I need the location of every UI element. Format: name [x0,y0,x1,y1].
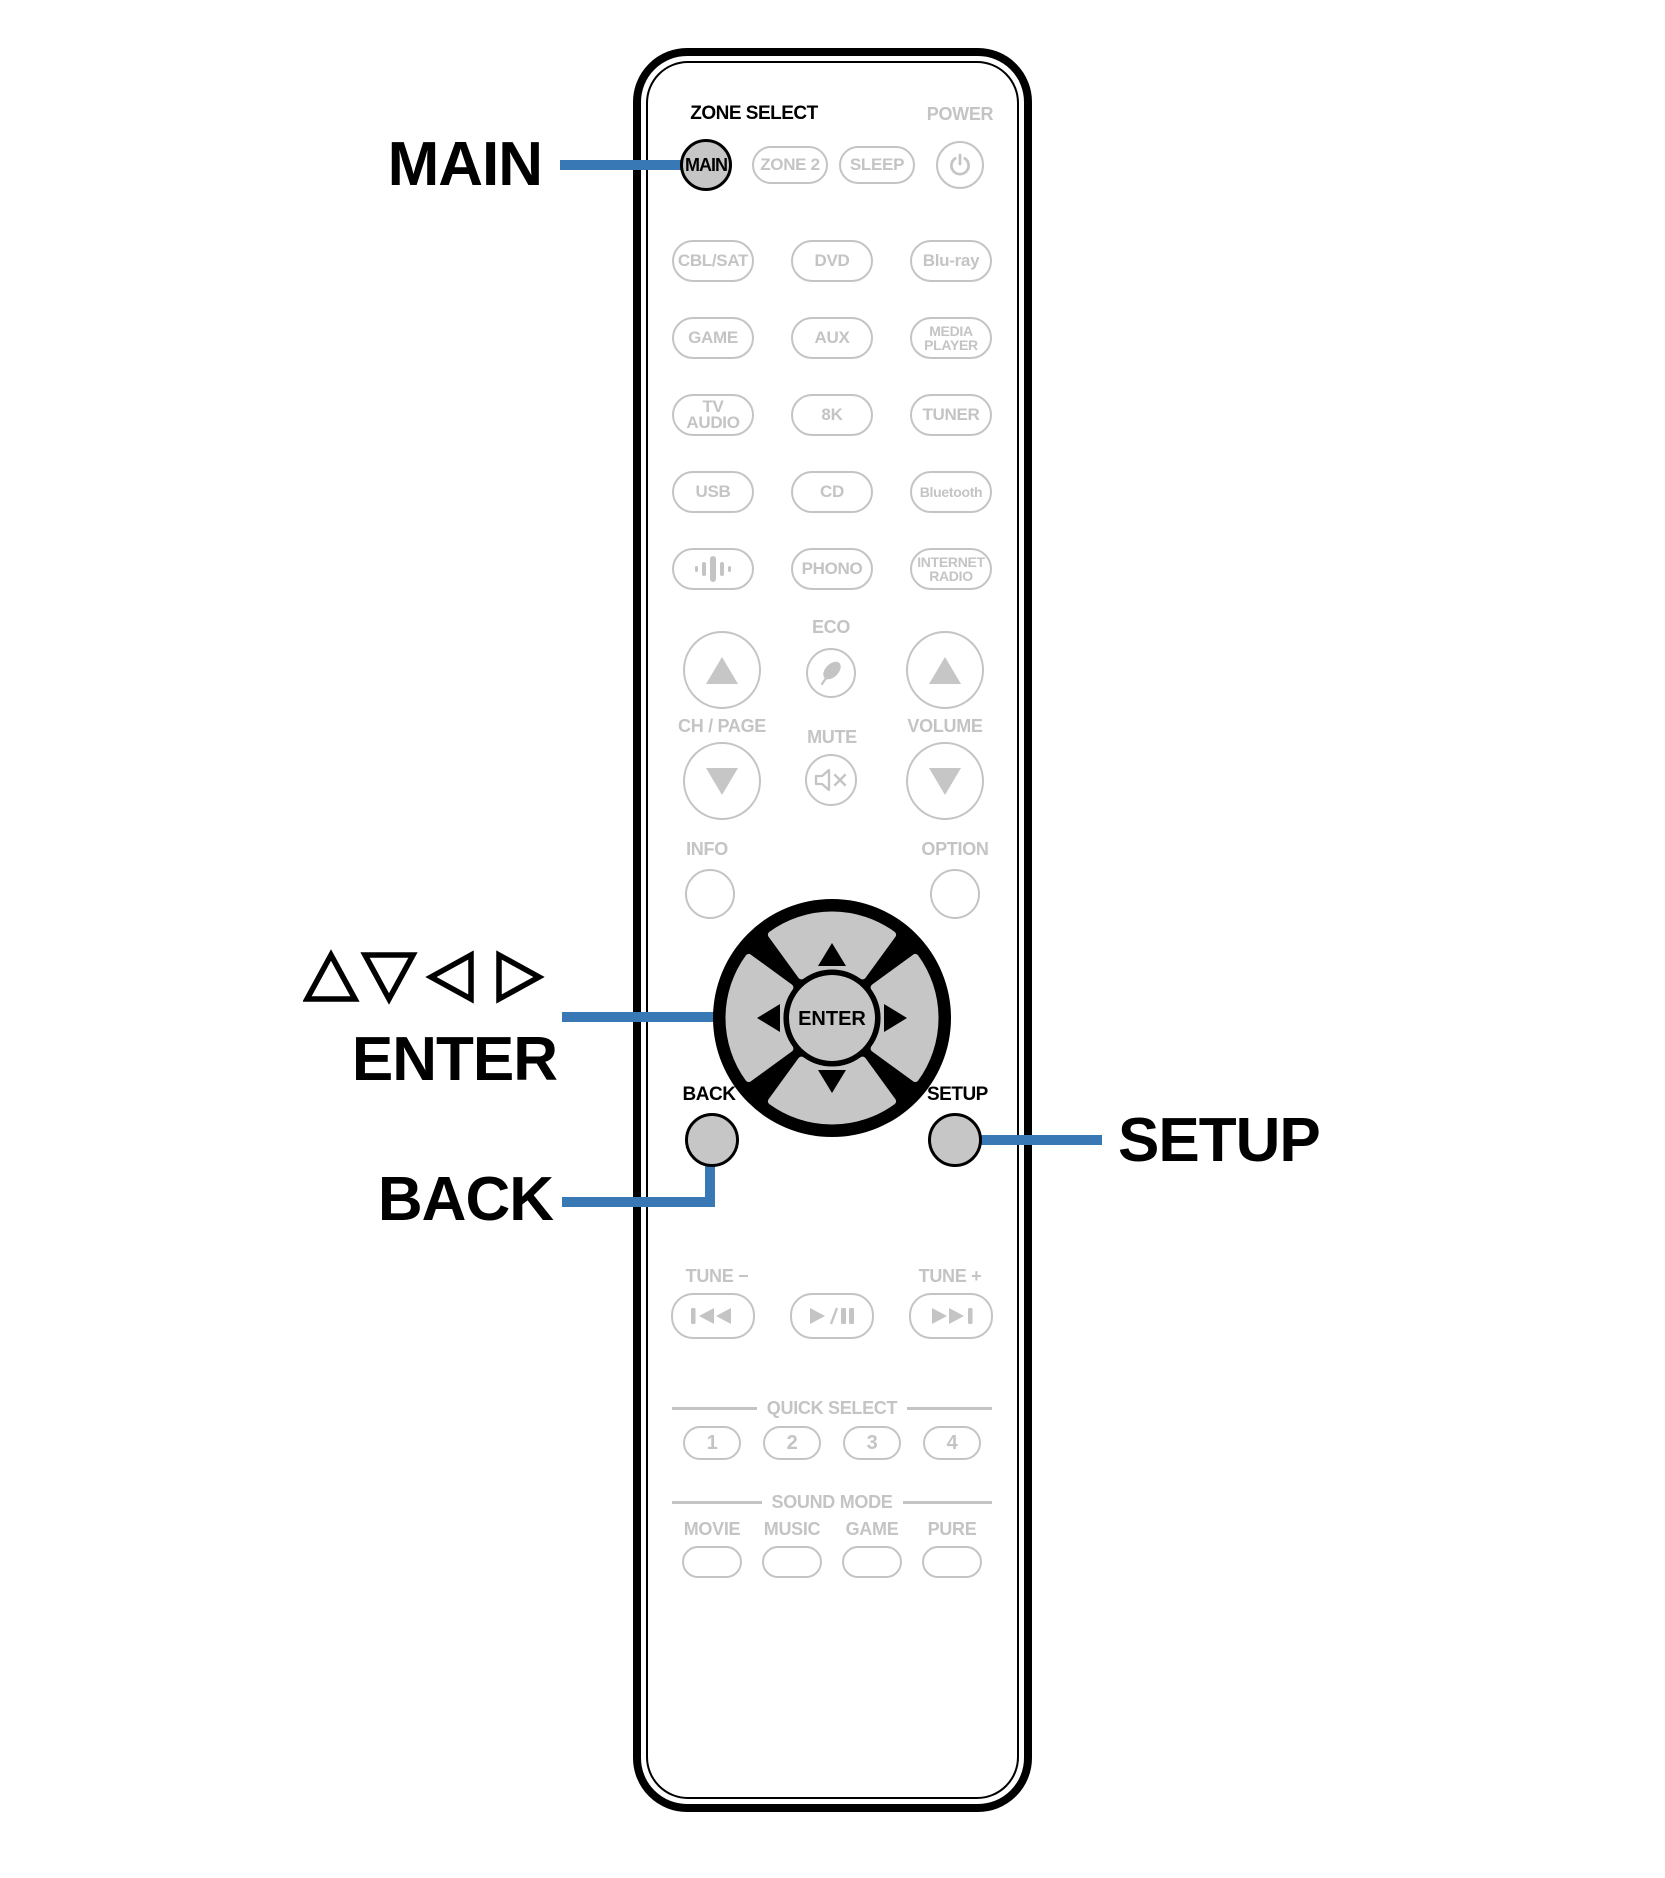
rule-line [672,1407,757,1410]
volume-down-button[interactable] [906,742,984,820]
ch-page-down-button[interactable] [683,742,761,820]
sound-mode-heading: SOUND MODE [672,1492,992,1513]
callout-back: BACK [285,1169,553,1231]
quick-select-2-button[interactable]: 2 [763,1426,821,1460]
main-zone-button[interactable]: MAIN [680,139,732,191]
source-button-media-player[interactable]: MEDIA PLAYER [910,317,992,359]
source-button-phono[interactable]: PHONO [791,548,873,590]
quick-select-1-button[interactable]: 1 [683,1426,741,1460]
sound-mode-movie-label: MOVIE [672,1519,752,1540]
rule-line [907,1407,992,1410]
callout-line-main [560,160,688,170]
sound-mode-movie-button[interactable] [682,1546,742,1578]
volume-up-button[interactable] [906,631,984,709]
source-button-aux[interactable]: AUX [791,317,873,359]
callout-line-back-horizontal [562,1197,715,1207]
sleep-button[interactable]: SLEEP [839,146,915,184]
back-button[interactable] [685,1113,739,1167]
quick-select-4-button[interactable]: 4 [923,1426,981,1460]
up-arrow-icon [929,657,961,684]
callout-enter: ENTER [285,1029,557,1091]
sound-mode-label: SOUND MODE [762,1492,903,1513]
manual-remote-diagram: ZONE SELECT POWER MAIN ZONE 2 SLEEP CBL/… [0,0,1665,1878]
source-button-cbl-sat[interactable]: CBL/SAT [672,240,754,282]
info-label: INFO [657,839,757,860]
ch-page-up-button[interactable] [683,631,761,709]
power-icon [947,152,973,178]
zone-select-label: ZONE SELECT [674,103,834,125]
setup-button[interactable] [928,1113,982,1167]
heos-icon [691,553,735,585]
sound-mode-pure-label: PURE [912,1519,992,1540]
cursor-triangles-icon [303,948,553,1006]
play-pause-icon [809,1307,855,1325]
quick-select-heading: QUICK SELECT [672,1398,992,1419]
play-pause-button[interactable] [790,1293,874,1339]
rule-line [903,1501,993,1504]
cursor-pad: ENTER [712,898,952,1138]
sound-mode-pure-button[interactable] [922,1546,982,1578]
skip-forward-icon [928,1307,974,1325]
source-button-tuner[interactable]: TUNER [910,394,992,436]
eco-button[interactable] [806,648,856,698]
source-button-dvd[interactable]: DVD [791,240,873,282]
source-button-game[interactable]: GAME [672,317,754,359]
up-arrow-icon [706,657,738,684]
source-button-internet-radio[interactable]: INTERNET RADIO [910,548,992,590]
down-arrow-icon [929,768,961,795]
source-button-heos[interactable] [672,548,754,590]
sound-mode-music-button[interactable] [762,1546,822,1578]
mute-label: MUTE [782,727,882,748]
callout-line-enter [562,1012,714,1022]
rule-line [672,1501,762,1504]
power-button[interactable] [936,141,984,189]
sound-mode-game-button[interactable] [842,1546,902,1578]
option-label: OPTION [905,839,1005,860]
enter-button-label: ENTER [798,1008,866,1030]
source-button-usb[interactable]: USB [672,471,754,513]
skip-back-button[interactable] [671,1293,755,1339]
ch-page-label: CH / PAGE [662,716,782,737]
source-button-blu-ray[interactable]: Blu-ray [910,240,992,282]
mute-button[interactable] [805,754,857,806]
sound-mode-game-label: GAME [832,1519,912,1540]
sound-mode-music-label: MUSIC [752,1519,832,1540]
tune-minus-label: TUNE − [662,1266,772,1287]
quick-select-label: QUICK SELECT [757,1398,907,1419]
eco-label: ECO [781,617,881,638]
source-button-tv-audio[interactable]: TV AUDIO [672,394,754,436]
mute-icon [813,766,849,794]
source-button-cd[interactable]: CD [791,471,873,513]
zone2-button[interactable]: ZONE 2 [752,146,828,184]
source-button-bluetooth[interactable]: Bluetooth [910,471,992,513]
skip-forward-button[interactable] [909,1293,993,1339]
callout-line-setup [978,1135,1102,1145]
down-arrow-icon [706,768,738,795]
source-button-8k[interactable]: 8K [791,394,873,436]
volume-label: VOLUME [885,716,1005,737]
eco-leaf-icon [815,657,847,689]
tune-plus-label: TUNE + [895,1266,1005,1287]
quick-select-3-button[interactable]: 3 [843,1426,901,1460]
callout-main: MAIN [270,134,542,196]
power-label: POWER [910,104,1010,125]
skip-back-icon [690,1307,736,1325]
callout-setup: SETUP [1118,1110,1320,1172]
